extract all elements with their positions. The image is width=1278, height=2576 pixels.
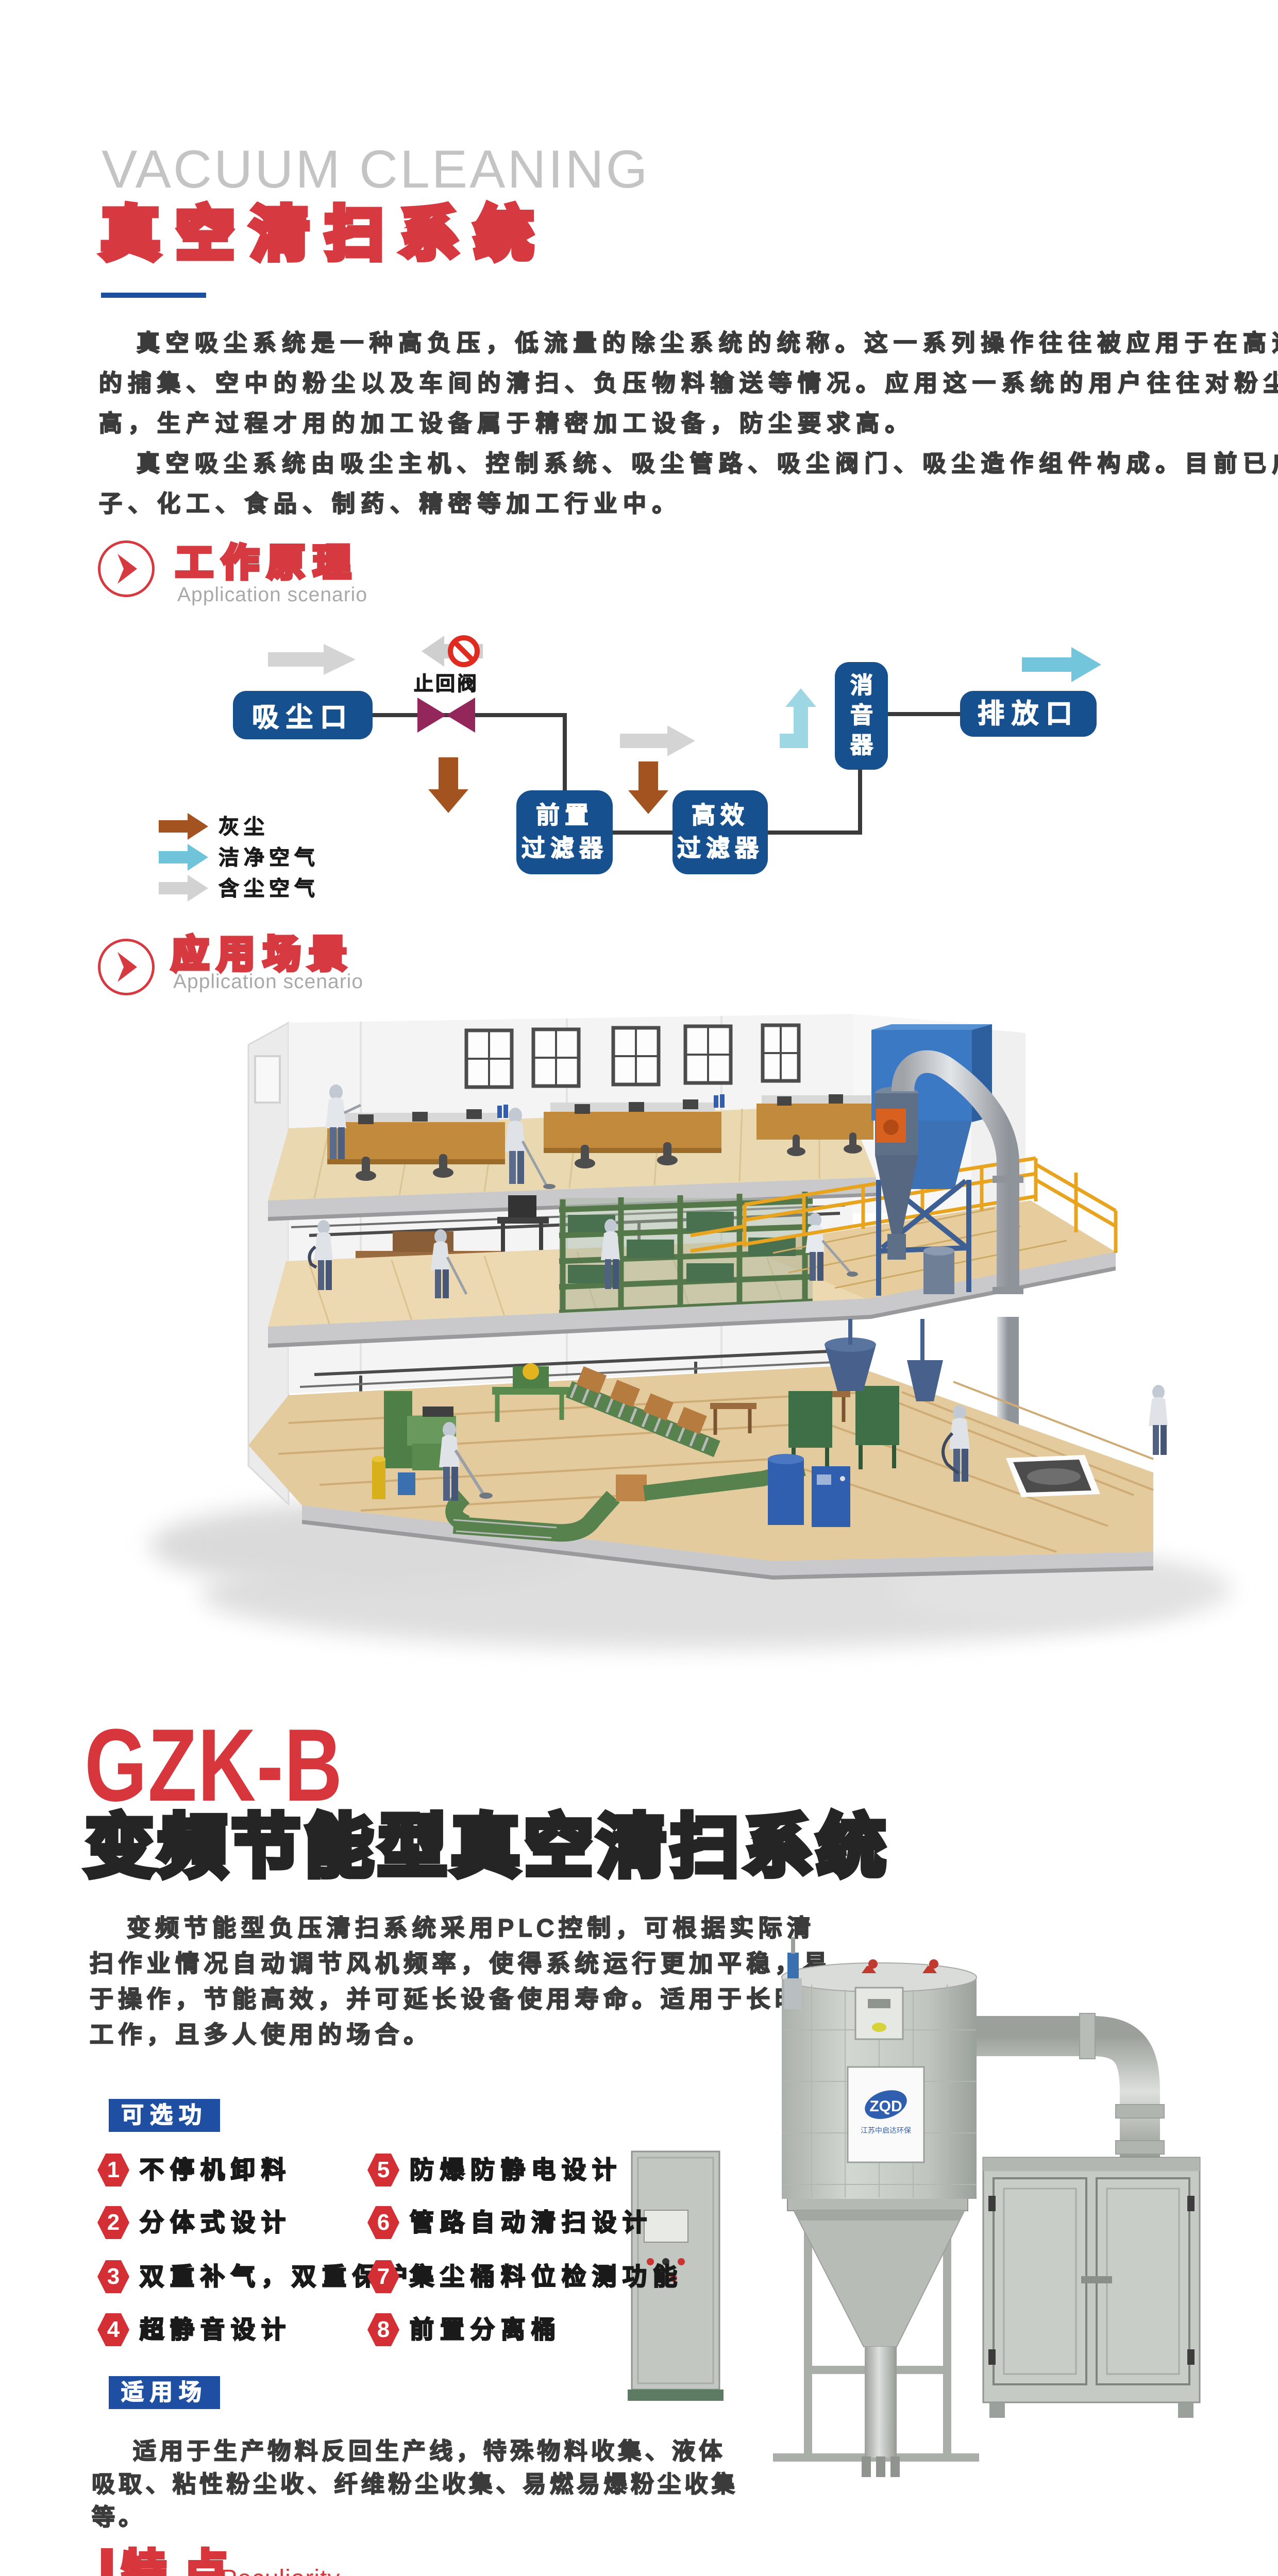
svg-text:过滤器: 过滤器 [677, 835, 764, 861]
svg-text:ZQD: ZQD [869, 2098, 902, 2115]
svg-text:排放口: 排放口 [978, 699, 1080, 729]
svg-text:吸尘口: 吸尘口 [252, 703, 354, 733]
svg-text:器: 器 [850, 733, 873, 758]
svg-text:灰尘: 灰尘 [218, 816, 269, 838]
svg-text:江苏中启达环保: 江苏中启达环保 [861, 2126, 911, 2134]
svg-text:含尘空气: 含尘空气 [218, 877, 320, 900]
svg-text:止回阀: 止回阀 [414, 673, 479, 695]
svg-text:过滤器: 过滤器 [522, 835, 608, 861]
svg-text:高效: 高效 [692, 802, 749, 828]
svg-text:洁净空气: 洁净空气 [218, 846, 320, 869]
svg-text:消: 消 [850, 673, 873, 698]
svg-text:音: 音 [850, 703, 873, 728]
svg-text:前置: 前置 [536, 802, 594, 828]
